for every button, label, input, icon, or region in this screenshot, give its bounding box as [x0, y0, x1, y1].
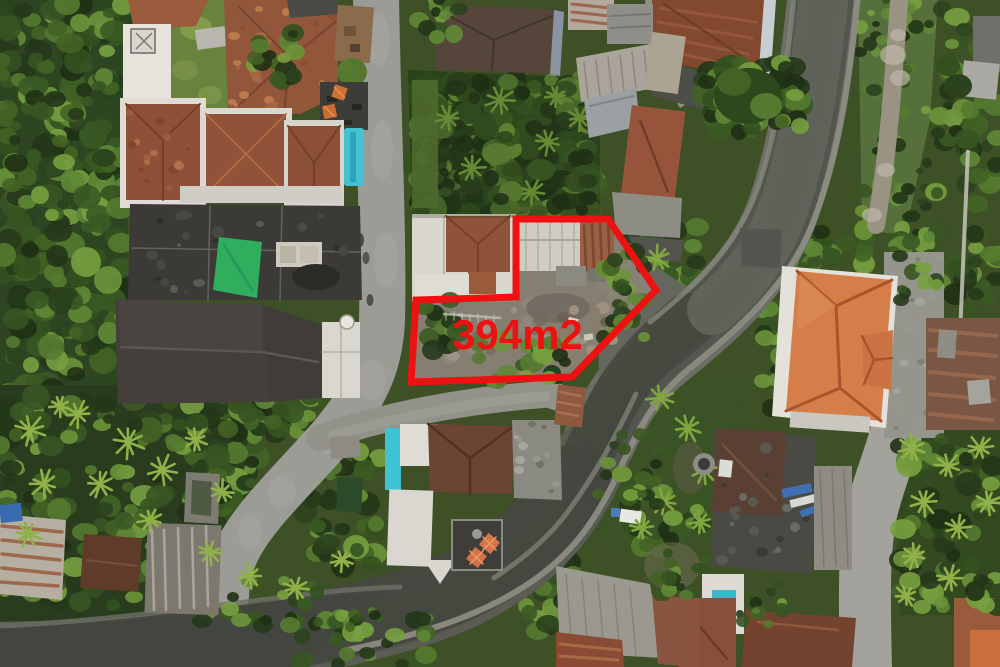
- svg-text:394m2: 394m2: [452, 311, 583, 358]
